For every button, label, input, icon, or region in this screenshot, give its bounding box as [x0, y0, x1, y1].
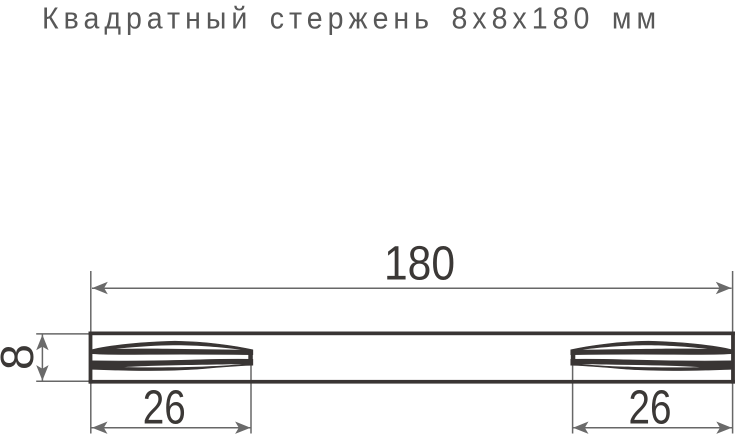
svg-text:26: 26 — [629, 381, 672, 435]
svg-text:180: 180 — [384, 237, 455, 291]
svg-text:26: 26 — [143, 381, 186, 435]
svg-text:Квадратный стержень 8х8х180 мм: Квадратный стержень 8х8х180 мм — [42, 1, 656, 35]
svg-text:8: 8 — [0, 344, 43, 370]
